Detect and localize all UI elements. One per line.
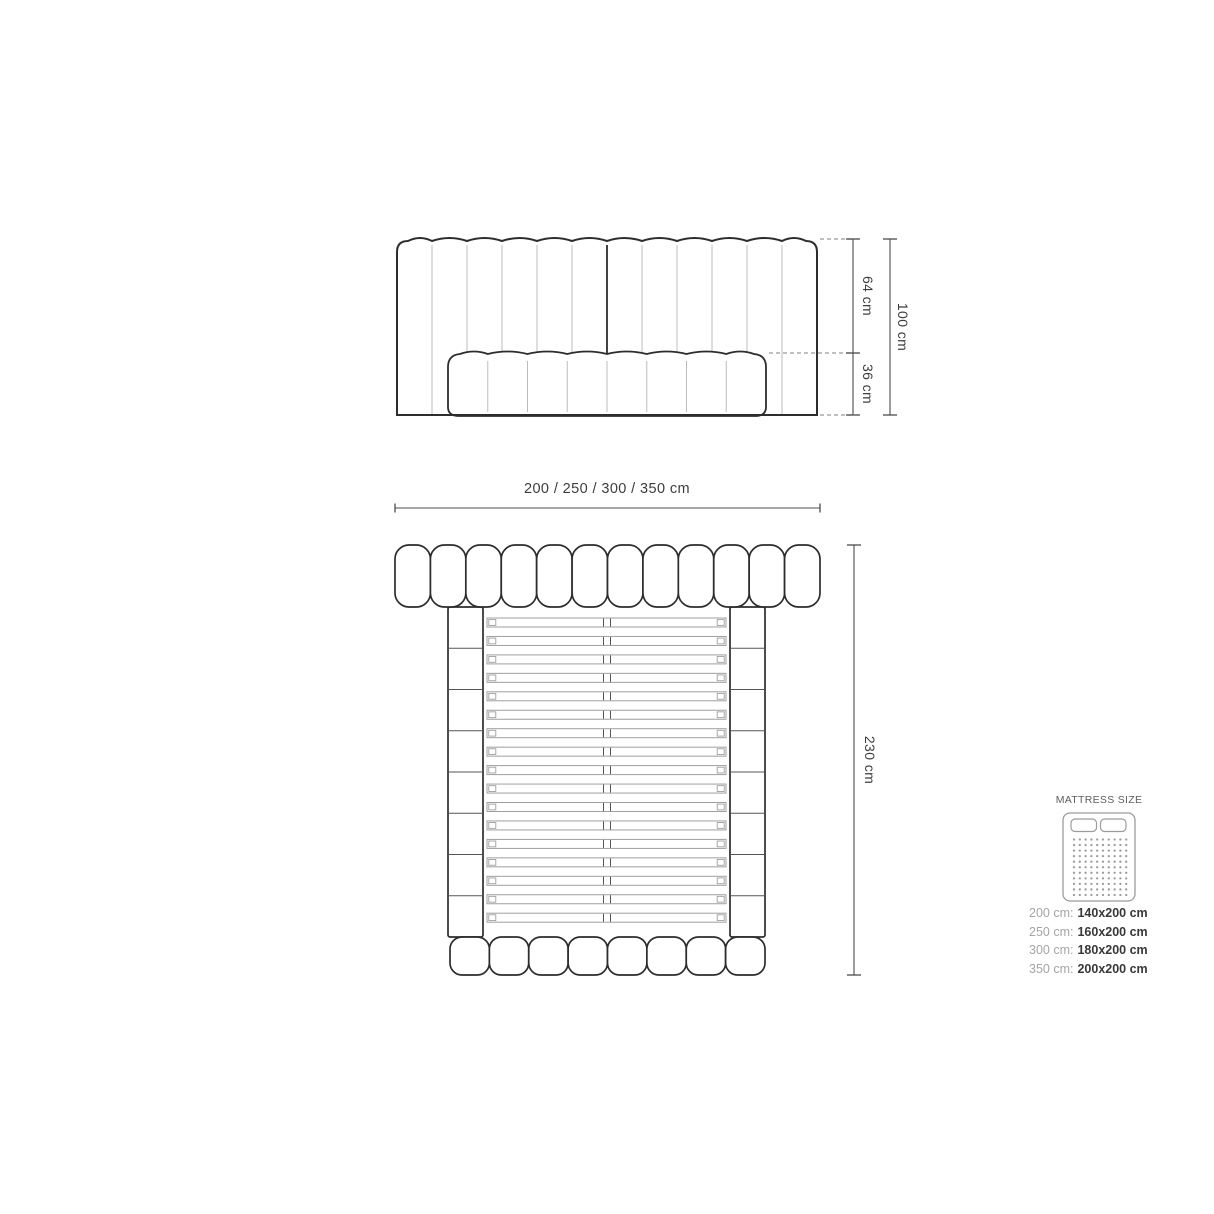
headboard-top-segment (501, 545, 536, 607)
mattress-dot (1125, 872, 1127, 874)
mattress-dot (1125, 861, 1127, 863)
dim-label-bed-length: 230 cm (862, 726, 878, 794)
footboard-segment (726, 937, 765, 975)
mattress-dot (1073, 844, 1075, 846)
mattress-dot (1108, 888, 1110, 890)
mattress-dot (1108, 866, 1110, 868)
slat (487, 729, 726, 738)
mattress-dot (1096, 855, 1098, 857)
mattress-dot (1090, 861, 1092, 863)
frame-size-label: 300 cm: (1029, 943, 1073, 957)
footboard-segment (489, 937, 528, 975)
mattress-dot (1108, 838, 1110, 840)
mattress-dot (1119, 866, 1121, 868)
mattress-dot (1108, 872, 1110, 874)
mattress-dot (1079, 888, 1081, 890)
footboard-segment (647, 937, 686, 975)
mattress-dot (1113, 872, 1115, 874)
slat (487, 692, 726, 701)
mattress-dot (1108, 849, 1110, 851)
mattress-dot (1102, 855, 1104, 857)
mattress-dot (1113, 838, 1115, 840)
headboard-top-segment (785, 545, 820, 607)
mattress-dot (1090, 866, 1092, 868)
slat (487, 636, 726, 645)
mattress-dot (1073, 861, 1075, 863)
mattress-dot (1096, 866, 1098, 868)
mattress-dot (1102, 877, 1104, 879)
mattress-dot (1084, 844, 1086, 846)
mattress-dot (1084, 894, 1086, 896)
headboard-top-segment (714, 545, 749, 607)
footboard-top-view (450, 937, 765, 975)
mattress-dot (1073, 855, 1075, 857)
mattress-dot (1119, 877, 1121, 879)
mattress-dot (1079, 838, 1081, 840)
mattress-dot (1073, 849, 1075, 851)
mattress-dot (1119, 888, 1121, 890)
headboard-front-view (396, 238, 818, 416)
mattress-dot (1079, 861, 1081, 863)
mattress-dot (1119, 838, 1121, 840)
mattress-dot (1125, 888, 1127, 890)
slat (487, 673, 726, 682)
mattress-size-row: 350 cm: 200x200 cm (1029, 962, 1148, 976)
headboard-top-segment (466, 545, 501, 607)
slat (487, 784, 726, 793)
slat (487, 655, 726, 664)
mattress-size-list: 200 cm: 140x200 cm 250 cm: 160x200 cm 30… (1029, 906, 1148, 980)
slat (487, 803, 726, 812)
mattress-dot (1119, 849, 1121, 851)
slat (487, 839, 726, 848)
mattress-dot (1096, 838, 1098, 840)
mattress-dot (1084, 872, 1086, 874)
mattress-size-value: 200x200 cm (1077, 962, 1147, 976)
mattress-icon (1063, 813, 1135, 901)
dim-label-headboard-upper-height: 64 cm (860, 266, 876, 326)
mattress-dot (1108, 877, 1110, 879)
frame-size-label: 350 cm: (1029, 962, 1073, 976)
headboard-top-segment (678, 545, 713, 607)
mattress-dot (1102, 872, 1104, 874)
diagram-canvas (0, 0, 1214, 1214)
mattress-dot (1102, 849, 1104, 851)
mattress-dot (1119, 894, 1121, 896)
slat (487, 876, 726, 885)
mattress-dot (1079, 894, 1081, 896)
mattress-dot (1102, 883, 1104, 885)
mattress-dot (1079, 849, 1081, 851)
mattress-dot (1084, 838, 1086, 840)
dim-label-bed-width-options: 200 / 250 / 300 / 350 cm (457, 480, 757, 498)
mattress-dot (1073, 888, 1075, 890)
mattress-dot (1119, 872, 1121, 874)
mattress-dot (1096, 872, 1098, 874)
frame-size-label: 250 cm: (1029, 925, 1073, 939)
mattress-dot (1096, 844, 1098, 846)
mattress-dot (1119, 844, 1121, 846)
dim-label-headboard-total-height: 100 cm (895, 292, 911, 362)
mattress-dot (1108, 894, 1110, 896)
footboard-segment (608, 937, 647, 975)
headboard-top-segment (643, 545, 678, 607)
pillow-left (1071, 819, 1097, 832)
mattress-dot (1096, 877, 1098, 879)
mattress-dot (1090, 872, 1092, 874)
mattress-dot (1125, 838, 1127, 840)
mattress-dot (1113, 894, 1115, 896)
footboard-segment (450, 937, 489, 975)
mattress-dot (1079, 844, 1081, 846)
headboard-top-segment (430, 545, 465, 607)
mattress-dot (1108, 844, 1110, 846)
mattress-dot (1096, 894, 1098, 896)
mattress-dot (1073, 877, 1075, 879)
mattress-dot (1090, 883, 1092, 885)
mattress-dot (1108, 861, 1110, 863)
mattress-dot (1125, 866, 1127, 868)
headboard-top-segment (572, 545, 607, 607)
mattress-dot (1125, 844, 1127, 846)
headboard-top-segment (537, 545, 572, 607)
mattress-dot (1102, 888, 1104, 890)
mattress-size-row: 250 cm: 160x200 cm (1029, 925, 1148, 939)
slat (487, 710, 726, 719)
mattress-dot (1125, 849, 1127, 851)
footboard-segment (529, 937, 568, 975)
mattress-dot (1073, 866, 1075, 868)
mattress-dot (1084, 861, 1086, 863)
slat (487, 913, 726, 922)
mattress-size-row: 300 cm: 180x200 cm (1029, 943, 1148, 957)
slat (487, 858, 726, 867)
slat (487, 618, 726, 627)
mattress-dot (1079, 883, 1081, 885)
mattress-dot (1079, 877, 1081, 879)
mattress-dot (1102, 894, 1104, 896)
mattress-dot (1102, 866, 1104, 868)
mattress-size-value: 140x200 cm (1077, 906, 1147, 920)
slat (487, 895, 726, 904)
mattress-dot (1084, 866, 1086, 868)
bed-dimensions-diagram: 64 cm 36 cm 100 cm 200 / 250 / 300 / 350… (0, 0, 1214, 1214)
mattress-dot (1119, 883, 1121, 885)
mattress-dot (1090, 849, 1092, 851)
mattress-dot (1084, 849, 1086, 851)
mattress-dot (1125, 894, 1127, 896)
mattress-dot (1090, 877, 1092, 879)
mattress-dot (1090, 855, 1092, 857)
headboard-top-segment (608, 545, 643, 607)
headboard-top-segment (749, 545, 784, 607)
mattress-dot (1084, 877, 1086, 879)
mattress-dot (1073, 883, 1075, 885)
headboard-top-segment (395, 545, 430, 607)
dim-label-headboard-lower-height: 36 cm (860, 354, 876, 414)
slat (487, 766, 726, 775)
mattress-dot (1102, 861, 1104, 863)
mattress-dot (1113, 855, 1115, 857)
mattress-dot (1079, 855, 1081, 857)
footboard-segment (568, 937, 607, 975)
mattress-size-row: 200 cm: 140x200 cm (1029, 906, 1148, 920)
mattress-dot (1096, 883, 1098, 885)
mattress-dot (1119, 855, 1121, 857)
slat-base (487, 618, 726, 922)
length-dimension-line (847, 545, 861, 975)
mattress-dot (1113, 883, 1115, 885)
mattress-dot (1090, 894, 1092, 896)
mattress-size-value: 180x200 cm (1077, 943, 1147, 957)
mattress-dot (1096, 849, 1098, 851)
mattress-dot (1113, 888, 1115, 890)
footboard-segment (686, 937, 725, 975)
mattress-dot (1079, 866, 1081, 868)
mattress-dot (1084, 883, 1086, 885)
mattress-dot (1125, 855, 1127, 857)
mattress-dot (1108, 883, 1110, 885)
mattress-dot (1073, 838, 1075, 840)
mattress-dot (1079, 872, 1081, 874)
mattress-dot (1073, 872, 1075, 874)
mattress-dot (1113, 866, 1115, 868)
mattress-dot (1119, 861, 1121, 863)
mattress-dot (1125, 877, 1127, 879)
headboard-top-view (395, 545, 820, 607)
mattress-dot (1073, 894, 1075, 896)
mattress-dot (1084, 855, 1086, 857)
mattress-dot (1102, 844, 1104, 846)
mattress-dot (1113, 877, 1115, 879)
mattress-dot (1090, 888, 1092, 890)
mattress-dot (1096, 888, 1098, 890)
mattress-dot (1113, 849, 1115, 851)
frame-size-label: 200 cm: (1029, 906, 1073, 920)
mattress-dot (1090, 838, 1092, 840)
mattress-dot (1113, 861, 1115, 863)
mattress-dot (1125, 883, 1127, 885)
slat (487, 821, 726, 830)
mattress-dot (1096, 861, 1098, 863)
mattress-dot (1108, 855, 1110, 857)
slat (487, 747, 726, 756)
mattress-dot (1113, 844, 1115, 846)
mattress-dot (1084, 888, 1086, 890)
mattress-size-value: 160x200 cm (1077, 925, 1147, 939)
pillow-right (1101, 819, 1127, 832)
mattress-dot (1090, 844, 1092, 846)
mattress-dot (1102, 838, 1104, 840)
mattress-size-title: MATTRESS SIZE (1063, 793, 1135, 807)
